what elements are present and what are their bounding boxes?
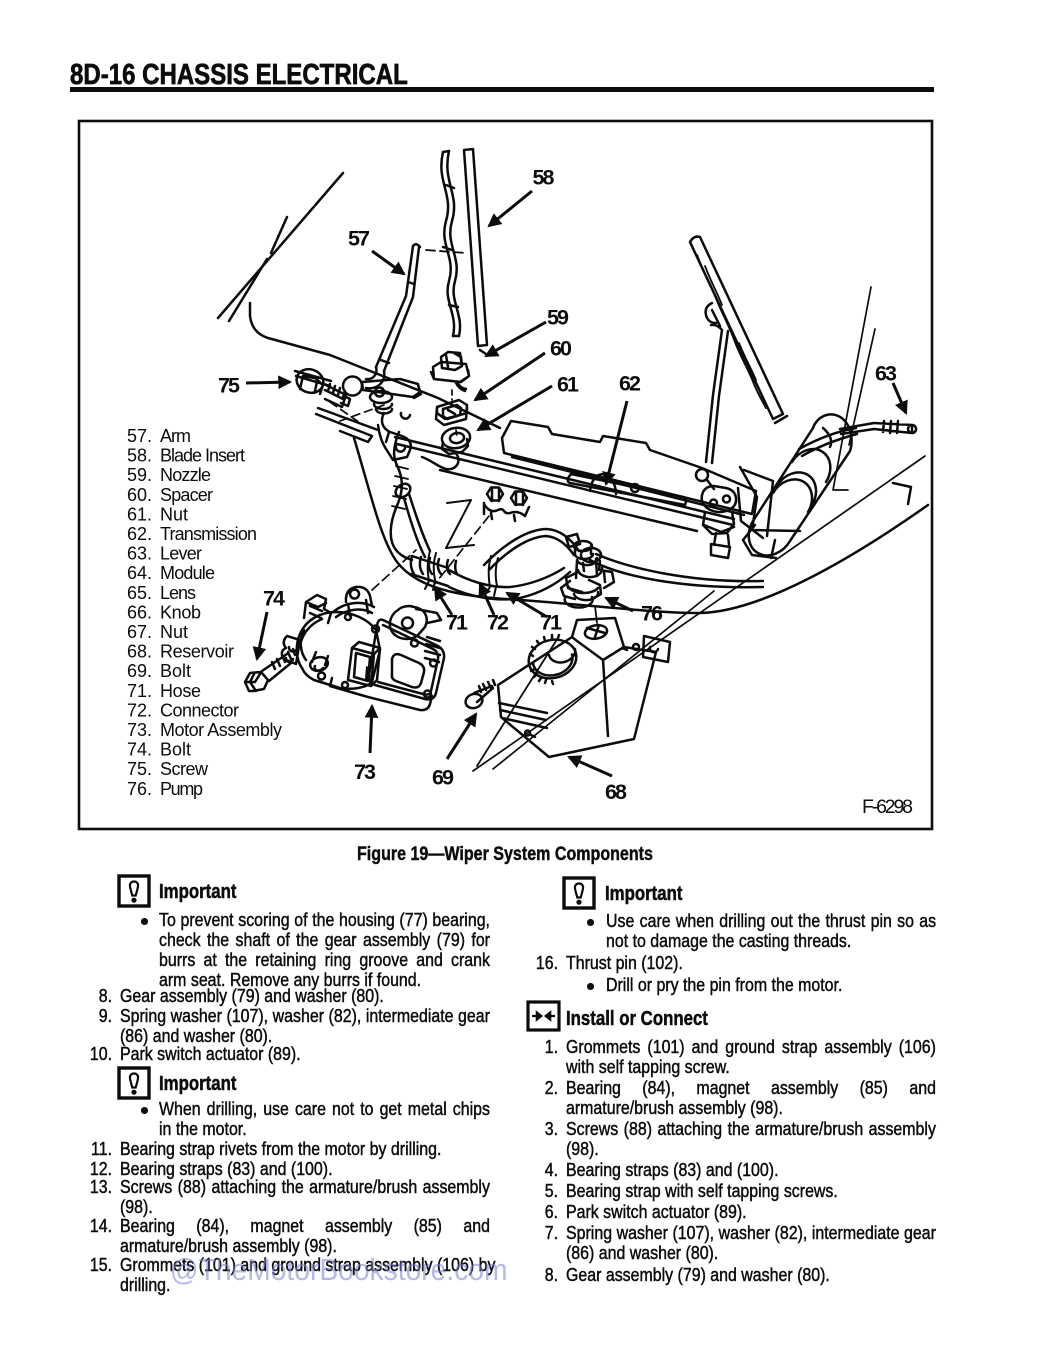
svg-text:57.: 57.: [127, 426, 152, 446]
svg-text:60: 60: [550, 337, 572, 361]
svg-text:Knob: Knob: [160, 602, 201, 622]
svg-text:Lens: Lens: [160, 583, 196, 603]
svg-text:75: 75: [218, 374, 240, 398]
svg-text:F-6298: F-6298: [862, 796, 913, 818]
svg-text:72.: 72.: [127, 700, 152, 720]
svg-text:Module: Module: [160, 563, 215, 583]
svg-text:57: 57: [348, 227, 370, 251]
svg-text:Nut: Nut: [160, 504, 188, 524]
svg-text:58: 58: [533, 166, 555, 190]
svg-text:75.: 75.: [127, 759, 152, 779]
svg-text:Spacer: Spacer: [160, 485, 213, 505]
svg-text:63: 63: [875, 362, 897, 386]
svg-text:72: 72: [487, 611, 509, 635]
svg-text:74.: 74.: [127, 740, 152, 760]
svg-text:Nozzle: Nozzle: [160, 465, 211, 485]
svg-text:Bolt: Bolt: [160, 740, 191, 760]
svg-text:69: 69: [432, 766, 454, 790]
svg-text:59.: 59.: [127, 465, 152, 485]
svg-text:74: 74: [263, 587, 285, 611]
svg-text:Lever: Lever: [160, 544, 202, 564]
svg-text:Arm: Arm: [160, 426, 191, 446]
svg-text:63.: 63.: [127, 544, 152, 564]
svg-text:Screw: Screw: [160, 759, 209, 779]
svg-text:Motor Assembly: Motor Assembly: [160, 720, 282, 740]
svg-text:Bolt: Bolt: [160, 661, 191, 681]
svg-text:73.: 73.: [127, 720, 152, 740]
svg-text:64.: 64.: [127, 563, 152, 583]
svg-text:69.: 69.: [127, 661, 152, 681]
svg-text:Pump: Pump: [160, 779, 203, 799]
svg-text:62.: 62.: [127, 524, 152, 544]
svg-text:71: 71: [446, 611, 468, 635]
svg-text:Nut: Nut: [160, 622, 188, 642]
svg-text:Reservoir: Reservoir: [160, 642, 234, 662]
svg-text:66.: 66.: [127, 602, 152, 622]
svg-text:67.: 67.: [127, 622, 152, 642]
svg-text:61.: 61.: [127, 504, 152, 524]
svg-text:Connector: Connector: [160, 700, 239, 720]
svg-text:71.: 71.: [127, 681, 152, 701]
svg-text:58.: 58.: [127, 446, 152, 466]
svg-text:Blade Insert: Blade Insert: [160, 446, 245, 466]
svg-text:60.: 60.: [127, 485, 152, 505]
svg-text:62: 62: [619, 372, 641, 396]
svg-text:Hose: Hose: [160, 681, 201, 701]
svg-text:76: 76: [641, 602, 663, 626]
svg-text:71: 71: [540, 611, 562, 635]
svg-text:76.: 76.: [127, 779, 152, 799]
svg-text:59: 59: [547, 306, 569, 330]
svg-text:68.: 68.: [127, 642, 152, 662]
svg-text:65.: 65.: [127, 583, 152, 603]
svg-text:Transmission: Transmission: [160, 524, 257, 544]
svg-text:61: 61: [557, 373, 579, 397]
svg-text:68: 68: [605, 780, 627, 804]
svg-text:73: 73: [354, 760, 376, 784]
